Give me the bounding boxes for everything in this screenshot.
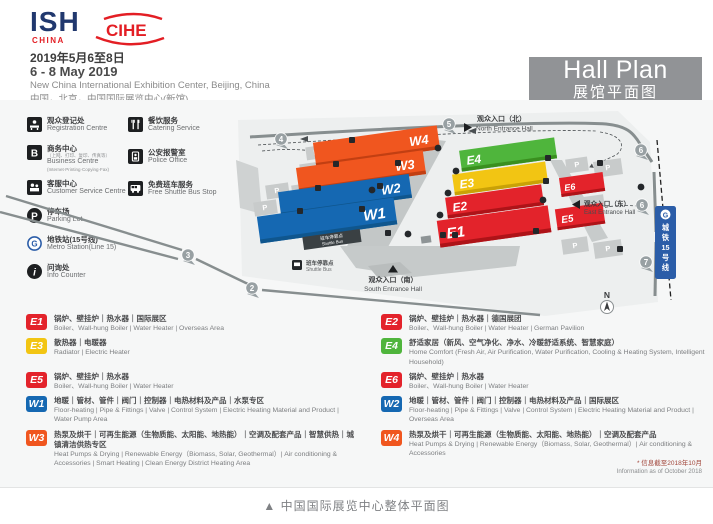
svg-text:7: 7 — [644, 258, 649, 267]
legend-en: Boiler、Wall-hung Boiler | Water Heater |… — [409, 324, 584, 333]
cihe-swoosh-top — [104, 14, 162, 19]
compass-n-label: N — [604, 290, 610, 300]
shuttle-key-en: Shuttle Bus — [306, 267, 332, 273]
hall-plan-page: ISH CHINA CIHE 2019年5月6至8日 6 - 8 May 201… — [0, 0, 713, 524]
legend-item-E2: E2 锅炉、壁挂炉｜热水器｜德国展团 Boiler、Wall-hung Boil… — [381, 314, 710, 333]
badge-E4: E4 — [381, 338, 402, 354]
hall-label-W2: W2 — [380, 180, 402, 198]
hall-legend: E1 锅炉、壁挂炉｜热水器｜国际展区 Boiler、Wall-hung Boil… — [26, 314, 710, 468]
hall-label-E4: E4 — [466, 152, 483, 168]
legend-item-E1: E1 锅炉、壁挂炉｜热水器｜国际展区 Boiler、Wall-hung Boil… — [26, 314, 355, 333]
legend-en: Floor-heating | Pipe & Fittings | Valve … — [409, 406, 710, 424]
footnote-en: Information as of October 2018 — [480, 468, 702, 476]
site-map: P P P P P P P P P P P P W4 — [0, 102, 713, 318]
svg-text:5: 5 — [447, 120, 452, 129]
badge-E2: E2 — [381, 314, 402, 330]
legend-zh: 地暖｜管材、管件｜阀门｜控制器｜电热材料及产品｜水泵专区 — [54, 396, 355, 406]
legend-en: Boiler、Wall-hung Boiler | Water Heater |… — [54, 324, 224, 333]
east-entrance-en: East Entrance Hall — [584, 209, 635, 216]
badge-W3: W3 — [26, 430, 47, 446]
badge-W4: W4 — [381, 430, 402, 446]
north-entrance-zh: 观众入口（北） — [477, 114, 526, 123]
south-entrance-zh: 观众入口（南） — [369, 275, 418, 284]
badge-W2: W2 — [381, 396, 402, 412]
metro-char: 线 — [662, 263, 670, 272]
legend-en: Floor-heating | Pipe & Fittings | Valve … — [54, 406, 355, 424]
hall-label-W1: W1 — [362, 205, 387, 225]
legend-zh: 锅炉、壁挂炉｜热水器 — [409, 372, 529, 382]
metro-logo-icon: G — [663, 212, 669, 219]
cihe-logo-text: CIHE — [106, 21, 147, 40]
metro-char: 号 — [662, 253, 669, 262]
legend-item-E4: E4 舒适家居（新风、空气净化、净水、冷暖舒适系统、智慧家庭） Home Com… — [381, 338, 710, 366]
legend-item-E5: E5 锅炉、壁挂炉｜热水器 Boiler、Wall-hung Boiler | … — [26, 372, 355, 391]
legend-zh: 地暖｜管材、管件｜阀门｜控制器｜电热材料及产品｜国际展区 — [409, 396, 710, 406]
metro-char: 15 — [662, 243, 670, 252]
legend-en: Home Comfort (Fresh Air, Air Purificatio… — [409, 348, 710, 366]
page-caption: ▲ 中国国际展览中心整体平面图 — [0, 497, 713, 514]
legend-item-W2: W2 地暖｜管材、管件｜阀门｜控制器｜电热材料及产品｜国际展区 Floor-he… — [381, 396, 710, 424]
marker-2: 2 — [246, 282, 259, 298]
legend-zh: 锅炉、壁挂炉｜热水器 — [54, 372, 174, 382]
legend-item-E3: E3 散热器｜电暖器 Radiator | Electric Heater — [26, 338, 355, 366]
footnote-zh: * 信息截至2018年10月 — [480, 460, 702, 468]
svg-text:6: 6 — [639, 146, 644, 155]
hall-plan-title-box: Hall Plan 展馆平面图 — [529, 57, 702, 104]
hall-label-E3: E3 — [459, 176, 476, 192]
hall-label-W4: W4 — [408, 132, 430, 150]
legend-en: Radiator | Electric Heater — [54, 348, 130, 357]
hall-label-E5: E5 — [561, 213, 575, 226]
legend-zh: 舒适家居（新风、空气净化、净水、冷暖舒适系统、智慧家庭） — [409, 338, 710, 348]
badge-E6: E6 — [381, 372, 402, 388]
badge-E3: E3 — [26, 338, 47, 354]
shuttle-key-zh: 班车停靠点 — [306, 259, 334, 267]
legend-zh: 散热器｜电暖器 — [54, 338, 130, 348]
event-date-en: 6 - 8 May 2019 — [30, 64, 117, 79]
badge-E5: E5 — [26, 372, 47, 388]
ish-logo-text: ISH — [30, 6, 80, 38]
badge-E1: E1 — [26, 314, 47, 330]
legend-en: Heat Pumps & Drying | Renewable Energy（B… — [54, 450, 355, 468]
badge-W1: W1 — [26, 396, 47, 412]
svg-text:3: 3 — [186, 251, 191, 260]
legend-en: Boiler、Wall-hung Boiler | Water Heater — [54, 382, 174, 391]
legend-item-E6: E6 锅炉、壁挂炉｜热水器 Boiler、Wall-hung Boiler | … — [381, 372, 710, 391]
metro-line: G 城 铁 15 号 线 — [655, 140, 676, 300]
legend-zh: 锅炉、壁挂炉｜热水器｜德国展团 — [409, 314, 584, 324]
hall-plan-title-en: Hall Plan — [529, 57, 702, 84]
legend-item-W3: W3 热泵及烘干｜可再生能源（生物质能、太阳能、地热能）｜空调及配套产品｜智慧供… — [26, 430, 355, 469]
plan-body: 观众登记处 Registration Centre B 商务中心 （上网、打印、… — [0, 100, 713, 488]
svg-text:4: 4 — [279, 135, 284, 144]
ish-logo-china: CHINA — [32, 36, 65, 45]
legend-item-W1: W1 地暖｜管材、管件｜阀门｜控制器｜电热材料及产品｜水泵专区 Floor-he… — [26, 396, 355, 424]
metro-char: 城 — [662, 223, 670, 232]
svg-text:6: 6 — [640, 201, 645, 210]
legend-en: Heat Pumps & Drying | Renewable Energy（B… — [409, 440, 710, 458]
legend-zh: 热泵及烘干｜可再生能源（生物质能、太阳能、地热能）｜空调及配套产品｜智慧供热｜城… — [54, 430, 355, 450]
east-entrance-zh: 观众入口（东） — [584, 199, 630, 208]
hall-label-E2: E2 — [452, 199, 469, 215]
svg-text:2: 2 — [250, 284, 255, 293]
north-entrance-en: North Entrance Hall — [476, 126, 533, 133]
metro-char: 铁 — [662, 233, 670, 242]
footnote: * 信息截至2018年10月 Information as of October… — [480, 460, 702, 477]
marker-3: 3 — [182, 249, 195, 265]
legend-en: Boiler、Wall-hung Boiler | Water Heater — [409, 382, 529, 391]
south-entrance-en: South Entrance Hall — [364, 286, 422, 293]
legend-zh: 热泵及烘干｜可再生能源（生物质能、太阳能、地热能）｜空调及配套产品 — [409, 430, 710, 440]
venue-en: New China International Exhibition Cente… — [30, 80, 270, 91]
legend-zh: 锅炉、壁挂炉｜热水器｜国际展区 — [54, 314, 224, 324]
